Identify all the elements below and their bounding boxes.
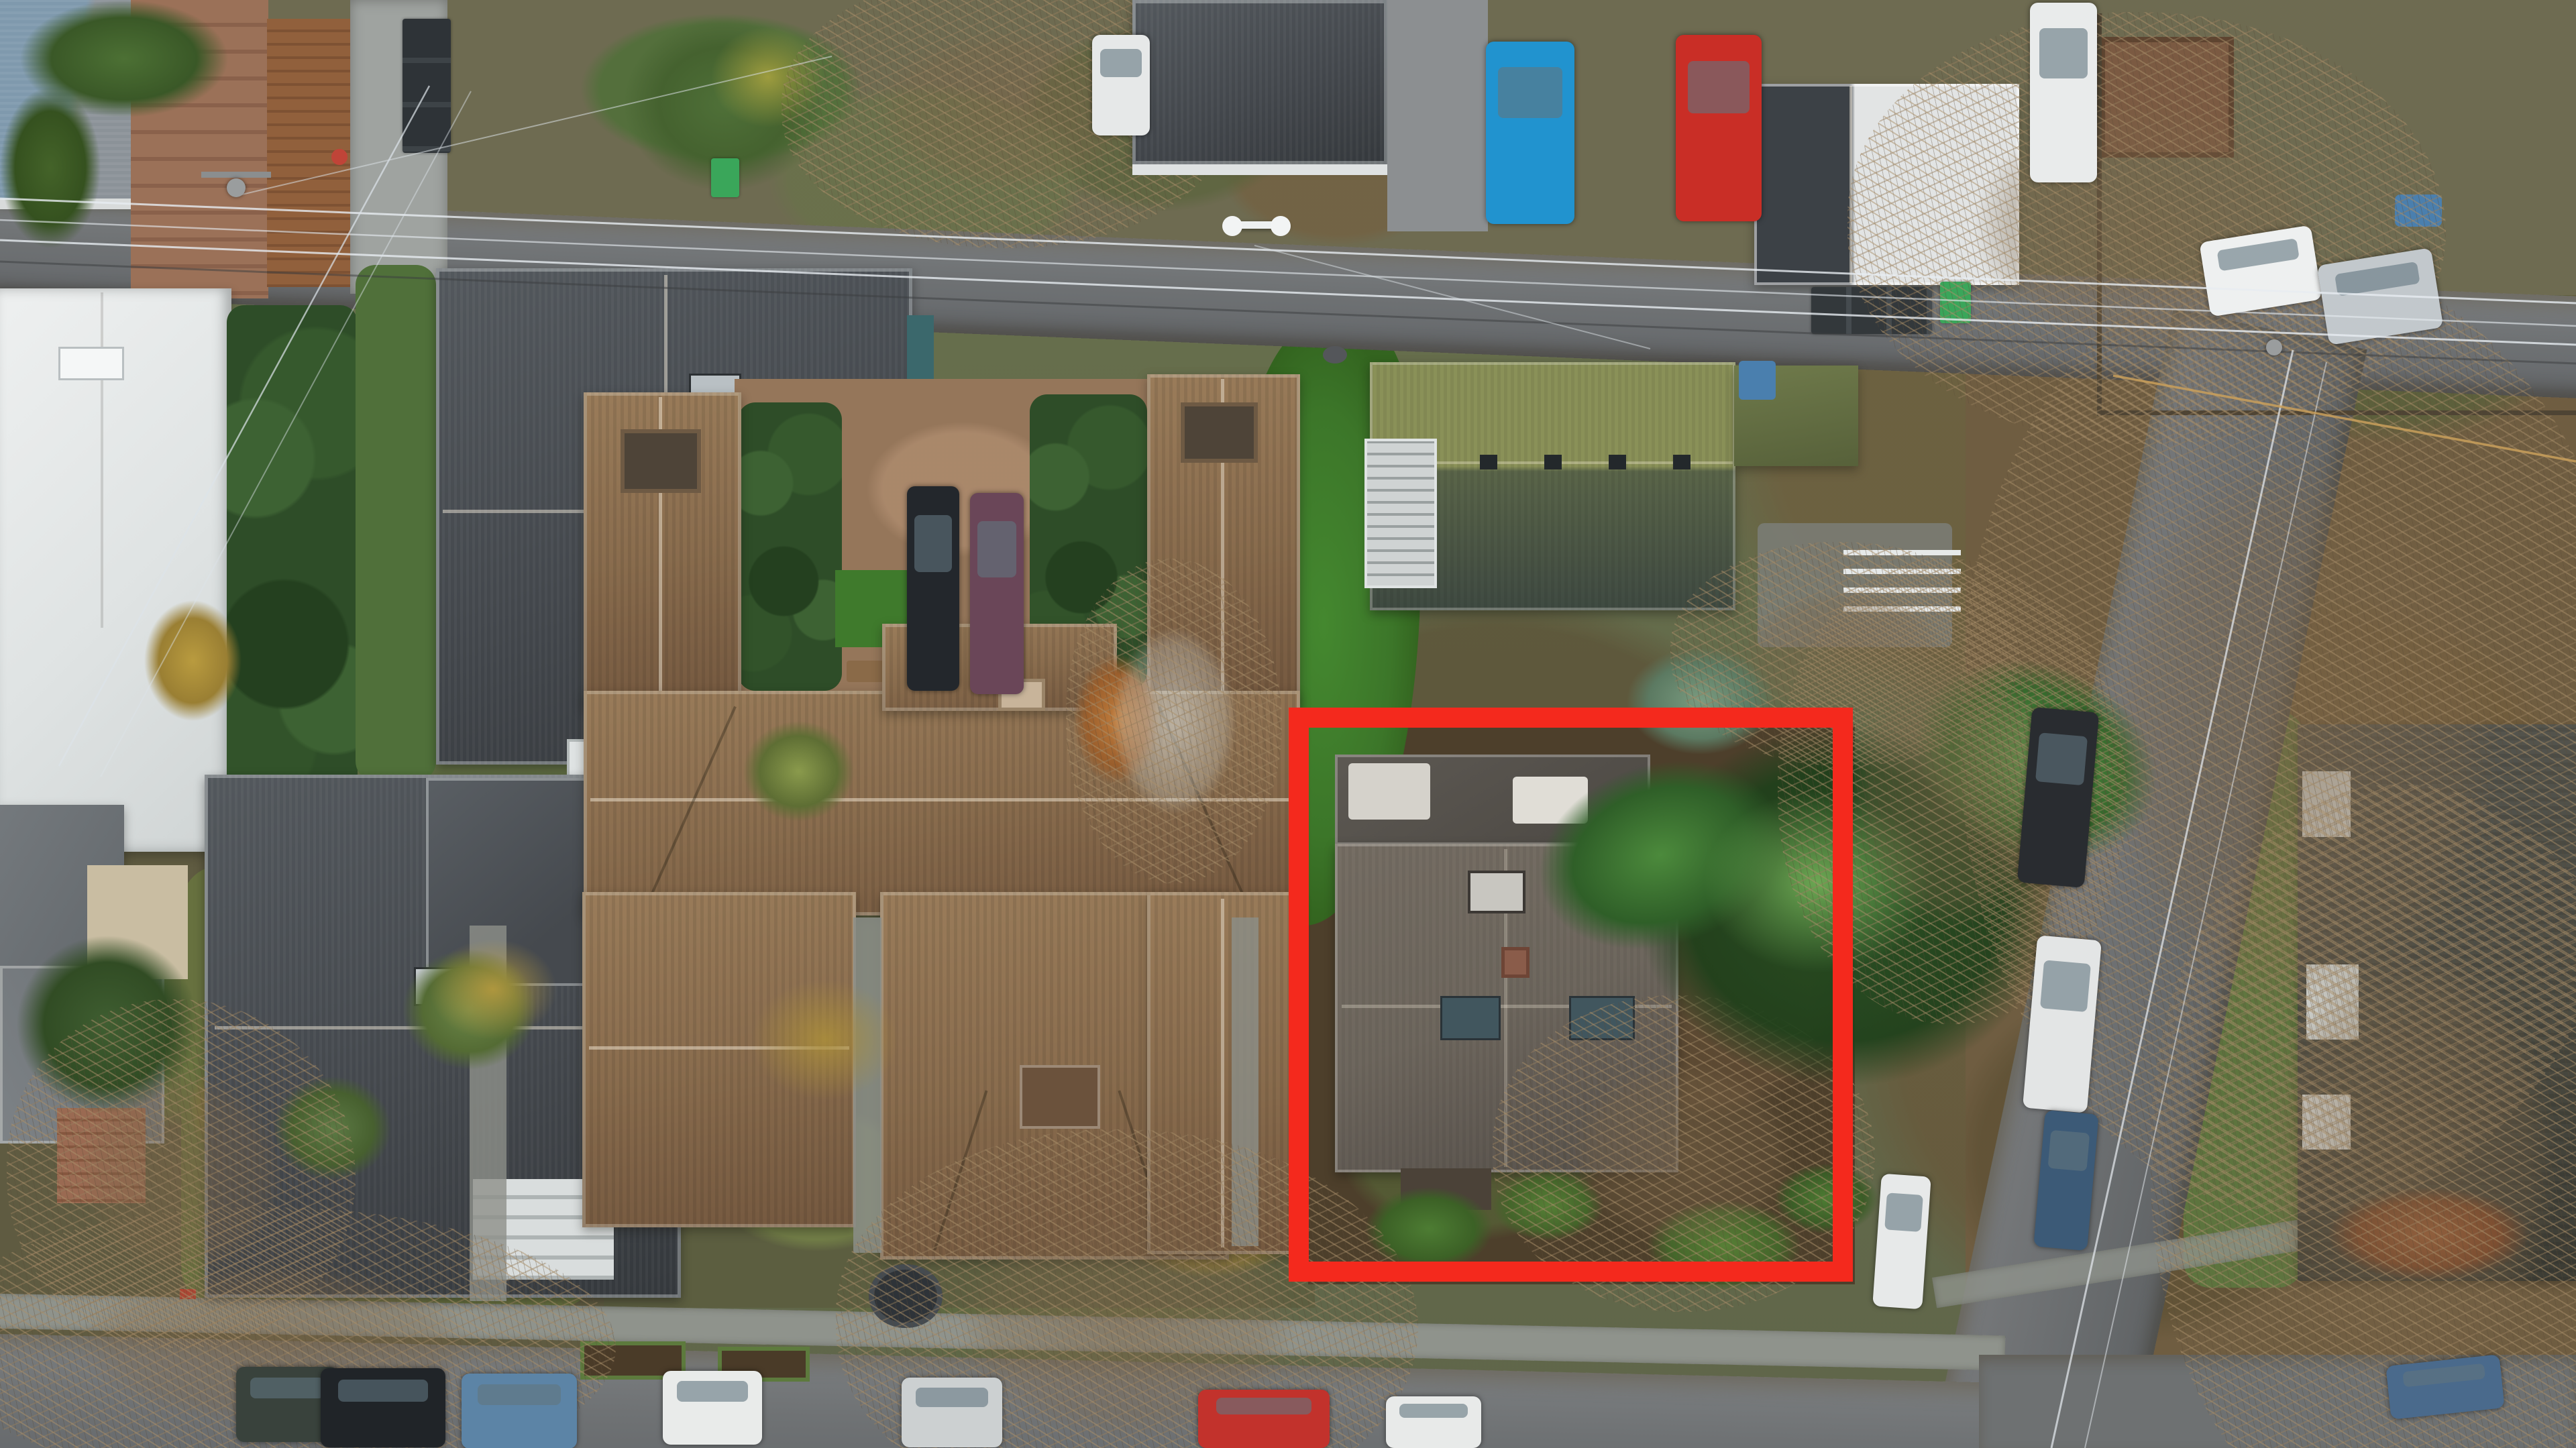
- east-wing-atrium: [1181, 402, 1258, 463]
- blue-tarp-annex: [1739, 361, 1776, 400]
- center-unit-dormer: [1020, 1065, 1100, 1129]
- west-wing-atrium: [621, 429, 701, 493]
- yellow-shrub-west: [144, 600, 241, 721]
- courtyard-hedge-left: [738, 402, 842, 691]
- bare-trees-northeast: [1905, 54, 2388, 402]
- car-glass: [1100, 49, 1142, 77]
- car-glass: [2048, 1129, 2090, 1171]
- orange-bush-courtyard-left: [743, 721, 854, 822]
- white-deck-structure: [1367, 441, 1434, 586]
- autumn-blob-yard-2: [751, 979, 899, 1100]
- tall-hedge-column: [227, 305, 358, 852]
- car-glass: [1216, 1398, 1311, 1414]
- car-glass: [2402, 1363, 2485, 1387]
- car-glass: [2334, 262, 2420, 297]
- car-glass: [478, 1384, 561, 1405]
- car: [321, 1368, 445, 1447]
- utility-pole-east: [2266, 339, 2282, 355]
- utility-pole-west: [201, 172, 271, 178]
- car-glass: [2039, 28, 2088, 78]
- utility-pole-west-top: [227, 178, 246, 197]
- car-glass: [2035, 732, 2088, 785]
- white-house-skylight: [60, 349, 122, 378]
- silver-birch-courtyard: [1087, 590, 1261, 852]
- property-highlight-rectangle: [1289, 708, 1853, 1282]
- bare-trees-east-south: [2200, 858, 2576, 1448]
- autumn-blob-yard-1: [429, 939, 557, 1040]
- car-glass: [338, 1380, 428, 1402]
- manhole-cover: [1323, 346, 1347, 364]
- car: [902, 1378, 1002, 1447]
- lawn-strip-west: [356, 265, 436, 781]
- street-lamp-globe-right: [1271, 216, 1291, 236]
- aerial-photo-canvas: [0, 0, 2576, 1448]
- car-glass: [1399, 1404, 1468, 1418]
- car-glass: [1498, 67, 1562, 118]
- car: [970, 493, 1024, 694]
- car-glass: [916, 1388, 988, 1407]
- car-glass: [1688, 61, 1750, 113]
- car: [1486, 42, 1574, 224]
- gravel-driveway-top: [1387, 0, 1488, 231]
- car: [1386, 1396, 1481, 1448]
- bare-trees-west-yard: [40, 1033, 322, 1315]
- red-ball: [331, 149, 347, 165]
- white-eave-top-house: [1132, 164, 1387, 175]
- car: [462, 1374, 577, 1448]
- car: [1198, 1390, 1330, 1448]
- dark-roof-house-top: [1132, 0, 1387, 164]
- car-glass: [2040, 960, 2090, 1012]
- car-glass: [1885, 1192, 1923, 1232]
- car: [2030, 3, 2097, 182]
- white-house-ridge-seam: [101, 292, 103, 628]
- green-bin-1: [711, 158, 739, 197]
- trash-bins-row: [402, 19, 451, 153]
- car: [1092, 35, 1150, 135]
- street-lamp-globe-left: [1222, 216, 1242, 236]
- car: [1676, 35, 1762, 221]
- leafy-tree-left-edge: [0, 87, 101, 248]
- car: [907, 486, 959, 691]
- car: [1872, 1174, 1931, 1310]
- car: [663, 1371, 762, 1445]
- car-glass: [977, 521, 1016, 577]
- car-glass: [677, 1381, 749, 1402]
- car-glass: [914, 515, 952, 572]
- car-glass: [250, 1378, 323, 1398]
- car-glass: [2216, 238, 2300, 272]
- moss-house-chimneys: [1415, 455, 1697, 469]
